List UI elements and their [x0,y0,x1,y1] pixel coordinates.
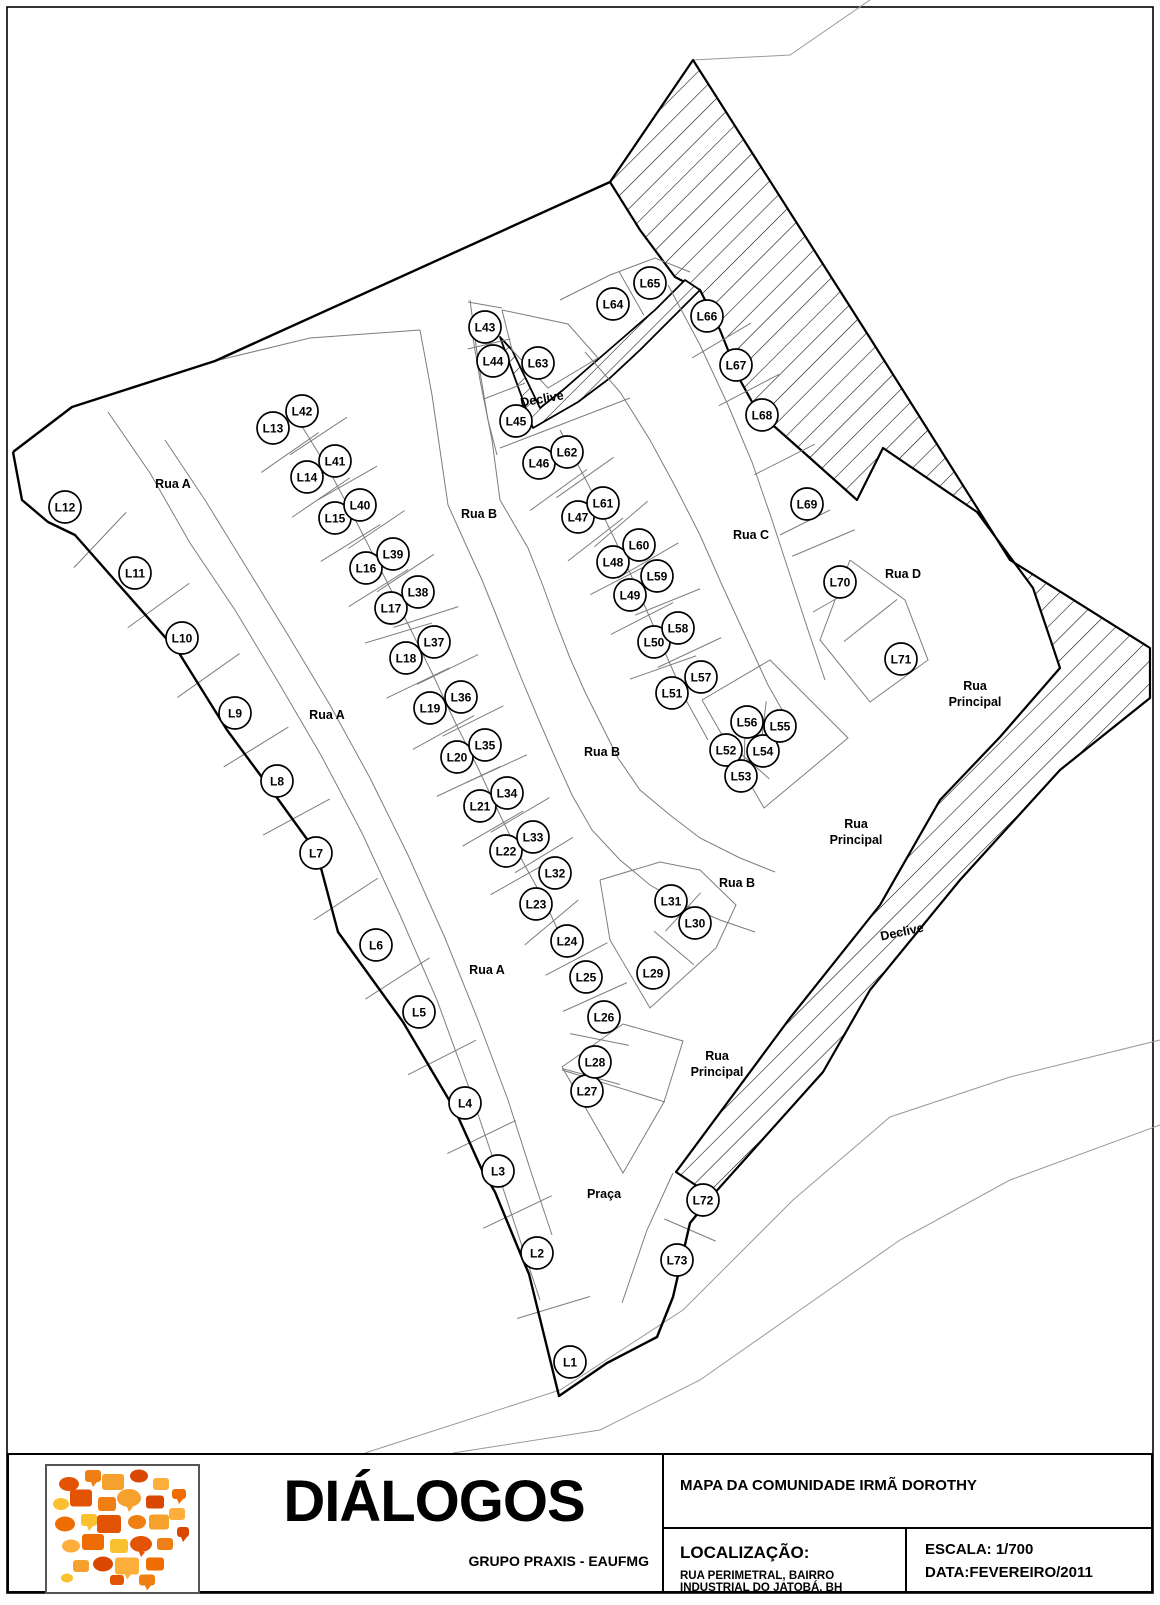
lot-marker-L38: L38 [402,576,434,608]
svg-text:L45: L45 [506,415,527,429]
lot-marker-L6: L6 [360,929,392,961]
lot-marker-L14: L14 [291,461,323,493]
title-block: DIÁLOGOS GRUPO PRAXIS - EAUFMG MAPA DA C… [7,1453,1153,1593]
lot-marker-L72: L72 [687,1184,719,1216]
lot-marker-L24: L24 [551,925,583,957]
lot-marker-L55: L55 [764,710,796,742]
svg-text:L53: L53 [731,770,752,784]
svg-text:L46: L46 [529,457,550,471]
lot-marker-L73: L73 [661,1244,693,1276]
svg-text:L54: L54 [753,745,774,759]
brand: DIÁLOGOS GRUPO PRAXIS - EAUFMG [209,1455,659,1591]
svg-text:L29: L29 [643,967,664,981]
svg-text:L13: L13 [263,422,284,436]
lot-marker-L37: L37 [418,626,450,658]
title-block-bottom-row: LOCALIZAÇÃO: RUA PERIMETRAL, BAIRRO INDU… [664,1527,1151,1591]
svg-text:L42: L42 [292,405,313,419]
svg-text:L71: L71 [891,653,912,667]
svg-text:L34: L34 [497,787,518,801]
svg-text:L38: L38 [408,586,429,600]
lot-marker-L36: L36 [445,681,477,713]
svg-text:L17: L17 [381,602,402,616]
lot-marker-L19: L19 [414,692,446,724]
svg-text:L3: L3 [491,1165,505,1179]
svg-text:L22: L22 [496,845,517,859]
lot-marker-L60: L60 [623,529,655,561]
svg-text:L62: L62 [557,446,578,460]
location-cell: LOCALIZAÇÃO: RUA PERIMETRAL, BAIRRO INDU… [680,1543,903,1594]
svg-text:L6: L6 [369,939,383,953]
street-label: Rua A [309,708,345,722]
svg-text:L10: L10 [172,632,193,646]
svg-text:L58: L58 [668,622,689,636]
svg-text:L72: L72 [693,1194,714,1208]
street-label: Rua B [719,876,755,890]
lot-marker-L68: L68 [746,399,778,431]
svg-text:L41: L41 [325,455,346,469]
lot-marker-L32: L32 [539,857,571,889]
location-label: LOCALIZAÇÃO: [680,1543,903,1563]
community-map: Rua ARua ARua ARua BRua BRua BRua CRua D… [0,0,1160,1600]
map-title: MAPA DA COMUNIDADE IRMÃ DOROTHY [680,1477,977,1494]
svg-text:L40: L40 [350,499,371,513]
svg-text:L16: L16 [356,562,377,576]
svg-text:L35: L35 [475,739,496,753]
svg-text:L73: L73 [667,1254,688,1268]
lot-marker-L5: L5 [403,996,435,1028]
lot-marker-L12: L12 [49,491,81,523]
lot-marker-L3: L3 [482,1155,514,1187]
lot-marker-L35: L35 [469,729,501,761]
svg-text:L36: L36 [451,691,472,705]
lot-marker-L45: L45 [500,405,532,437]
svg-text:L49: L49 [620,589,641,603]
svg-text:L9: L9 [228,707,242,721]
street-label: Rua A [155,477,191,491]
svg-text:L27: L27 [577,1085,598,1099]
street-label: Rua C [733,528,769,542]
lot-marker-L58: L58 [662,612,694,644]
svg-text:L7: L7 [309,847,323,861]
praca-label: Praça [587,1187,622,1201]
lot-marker-L69: L69 [791,488,823,520]
lot-marker-L41: L41 [319,445,351,477]
svg-text:L4: L4 [458,1097,472,1111]
dialogos-logo [45,1464,200,1594]
svg-text:L60: L60 [629,539,650,553]
lot-marker-L11: L11 [119,557,151,589]
svg-text:L61: L61 [593,497,614,511]
svg-text:L33: L33 [523,831,544,845]
svg-text:L26: L26 [594,1011,615,1025]
svg-text:L18: L18 [396,652,417,666]
speech-bubbles-logo-icon [47,1466,198,1592]
lot-marker-L71: L71 [885,643,917,675]
svg-text:L55: L55 [770,720,791,734]
lot-marker-L9: L9 [219,697,251,729]
svg-text:L43: L43 [475,321,496,335]
svg-text:L21: L21 [470,800,491,814]
svg-text:L64: L64 [603,298,624,312]
lot-marker-L26: L26 [588,1001,620,1033]
lot-marker-L29: L29 [637,957,669,989]
svg-text:L23: L23 [526,898,547,912]
lot-marker-L66: L66 [691,300,723,332]
lot-marker-L70: L70 [824,566,856,598]
svg-text:L56: L56 [737,716,758,730]
lot-marker-L67: L67 [720,349,752,381]
svg-text:L63: L63 [528,357,549,371]
lot-marker-L7: L7 [300,837,332,869]
svg-text:L44: L44 [483,355,504,369]
svg-text:L2: L2 [530,1247,544,1261]
svg-text:L1: L1 [563,1356,577,1370]
lot-marker-L49: L49 [614,579,646,611]
lot-marker-L10: L10 [166,622,198,654]
lot-marker-L23: L23 [520,888,552,920]
svg-text:L32: L32 [545,867,566,881]
svg-text:L24: L24 [557,935,578,949]
lot-marker-L62: L62 [551,436,583,468]
svg-text:L20: L20 [447,751,468,765]
svg-text:L50: L50 [644,636,665,650]
svg-text:L31: L31 [661,895,682,909]
svg-text:L59: L59 [647,570,668,584]
street-label: Rua A [469,963,505,977]
svg-text:L66: L66 [697,310,718,324]
svg-text:L52: L52 [716,744,737,758]
svg-text:L11: L11 [125,567,145,581]
lot-marker-L39: L39 [377,538,409,570]
svg-text:L30: L30 [685,917,706,931]
svg-text:L57: L57 [691,671,712,685]
lot-marker-L63: L63 [522,347,554,379]
lot-marker-L57: L57 [685,661,717,693]
lot-marker-L28: L28 [579,1046,611,1078]
street-label: Rua B [584,745,620,759]
street-label: Rua D [885,567,921,581]
lot-marker-L4: L4 [449,1087,481,1119]
svg-text:L48: L48 [603,556,624,570]
lot-marker-L43: L43 [469,311,501,343]
svg-text:L65: L65 [640,277,661,291]
svg-text:L19: L19 [420,702,441,716]
lot-marker-L56: L56 [731,706,763,738]
lot-marker-L34: L34 [491,777,523,809]
lot-marker-L31: L31 [655,885,687,917]
svg-text:L5: L5 [412,1006,426,1020]
svg-text:L39: L39 [383,548,404,562]
lot-marker-L27: L27 [571,1075,603,1107]
lot-marker-L61: L61 [587,487,619,519]
lot-marker-L65: L65 [634,267,666,299]
title-block-info: MAPA DA COMUNIDADE IRMÃ DOROTHY LOCALIZA… [662,1455,1151,1591]
lot-marker-L25: L25 [570,961,602,993]
svg-text:L47: L47 [568,511,589,525]
lot-marker-L64: L64 [597,288,629,320]
lot-marker-L53: L53 [725,760,757,792]
lot-marker-L40: L40 [344,489,376,521]
svg-text:L25: L25 [576,971,597,985]
svg-text:L14: L14 [297,471,318,485]
lot-marker-L1: L1 [554,1346,586,1378]
svg-text:L12: L12 [55,501,76,515]
svg-text:L37: L37 [424,636,445,650]
svg-text:L8: L8 [270,775,284,789]
svg-text:L67: L67 [726,359,747,373]
date-value: DATA:FEVEREIRO/2011 [925,1564,1151,1581]
lot-marker-L59: L59 [641,560,673,592]
location-value: RUA PERIMETRAL, BAIRRO INDUSTRIAL DO JAT… [680,1570,903,1594]
lot-marker-L13: L13 [257,412,289,444]
svg-text:L69: L69 [797,498,818,512]
map-sheet: Rua ARua ARua ARua BRua BRua BRua CRua D… [0,0,1160,1600]
svg-text:L28: L28 [585,1056,606,1070]
svg-text:L51: L51 [662,687,683,701]
brand-title: DIÁLOGOS [209,1473,659,1531]
lot-marker-L18: L18 [390,642,422,674]
brand-subtitle: GRUPO PRAXIS - EAUFMG [469,1553,649,1569]
svg-text:L70: L70 [830,576,851,590]
scale-value: ESCALA: 1/700 [925,1541,1151,1558]
lot-marker-L33: L33 [517,821,549,853]
lot-marker-L2: L2 [521,1237,553,1269]
lot-marker-L42: L42 [286,395,318,427]
lot-marker-L8: L8 [261,765,293,797]
lot-marker-L44: L44 [477,345,509,377]
street-label: Rua B [461,507,497,521]
lot-marker-L51: L51 [656,677,688,709]
scale-date-cell: ESCALA: 1/700 DATA:FEVEREIRO/2011 [905,1529,1151,1591]
svg-text:L15: L15 [325,512,346,526]
svg-text:L68: L68 [752,409,773,423]
